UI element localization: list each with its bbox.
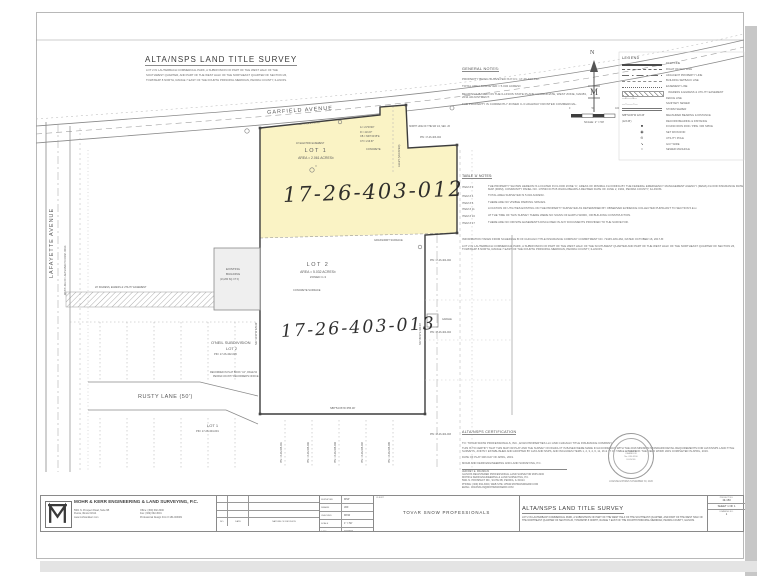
legend-label: STORM SEWER xyxy=(666,108,686,111)
project-cell: PROJECT NO. 19-153 SHEET 1 OF 1 DRAWING … xyxy=(707,496,745,531)
map-label: EXISTING xyxy=(226,268,240,271)
company-address: 5901 N. Prospect Road, Suite 6BPeoria, I… xyxy=(74,509,138,519)
map-label: WEST LINE OF LAUTERBACH COMM. PARK xyxy=(65,246,67,295)
staff-label: SCALE xyxy=(320,520,342,527)
legend-label: FOUND IRON ROD / PIPE / RR SPIKE xyxy=(666,125,713,128)
map-label: PIN: 17-26-404-002 xyxy=(430,260,451,262)
certification-to-line: TO: TOVAR SNOW PROFESSIONALS, INC., EVAN… xyxy=(462,441,744,445)
company-name: MOHR & KERR ENGINEERING & LAND SURVEYING… xyxy=(74,499,214,504)
lot2-label-block: LOT 2 AREA = 5.032 ACRES± ZONED C-3 xyxy=(274,262,362,279)
map-label: CH = 219.67' xyxy=(360,141,374,143)
legend-section: LEGEND DEED LINERIGHT OF WAY LINEADJACEN… xyxy=(622,56,742,154)
revision-header-no: NO. xyxy=(217,518,228,526)
map-label: PIN: 17-26-405-003 xyxy=(335,442,337,463)
table-a-item-text: TOTAL AREA SURVEYED IS 5.032 ACRES±. xyxy=(488,194,545,198)
table-a-item-number: ITEM # 11 xyxy=(462,207,488,211)
revision-row xyxy=(217,496,319,503)
general-notes-list: PROPERTY BEING SURVEYED IS P.I.N.: 17-26… xyxy=(462,78,588,107)
map-label: R = 413.97' xyxy=(360,132,372,134)
staff-value: 04/2019 xyxy=(342,530,353,531)
table-a-note: ITEM # 4TOTAL AREA SURVEYED IS 5.032 ACR… xyxy=(462,194,744,198)
table-a-list: ITEM # 3THE PROPERTY SHOWN HEREON IS LOC… xyxy=(462,185,744,225)
map-label: PIN: 17-26-405-001 xyxy=(281,442,283,463)
map-label: N88°54'26"E 197.70' xyxy=(298,122,320,126)
map-label: PIN: 17-26-404-003 xyxy=(430,434,451,436)
legend-label: ADJACENT PROPERTY LINE xyxy=(666,74,702,77)
table-a-item-text: AT THE TIME OF THIS SURVEY THERE WERE NO… xyxy=(488,214,631,218)
scale-tick: 50 xyxy=(591,108,594,110)
title-description-line: TOWNSHIP 8 NORTH, RANGE 7 EAST OF THE FO… xyxy=(146,78,341,83)
storm-symbol xyxy=(622,108,662,111)
legend-label: RIGHT OF WAY LINE xyxy=(666,68,692,71)
project-number-box: PROJECT NO. 19-153 xyxy=(708,496,745,504)
sheet-number-value: SHEET 1 OF 1 xyxy=(708,505,745,508)
general-note: THE PROPERTY IS CURRENTLY ZONED C-3 HIGH… xyxy=(462,103,588,107)
legend-item: ○SEWER MANHOLE xyxy=(622,148,742,154)
map-label: BUILDING xyxy=(226,273,240,276)
legend-label: BUILDING SETBACK LINE xyxy=(666,79,699,82)
legend-label: UTILITY POLE xyxy=(666,137,684,140)
map-label: 20' INGRESS, EGRESS & UTILITY EASEMENT xyxy=(95,287,146,289)
map-label: CB = N63°34'45"E xyxy=(360,136,380,138)
found-rod-symbol: ■ xyxy=(622,125,662,129)
company-contact-line: Professional Design Firm # 184-003081 xyxy=(140,516,214,519)
compass-emblem: M xyxy=(587,87,601,97)
row-symbol xyxy=(622,69,662,70)
staff-value: JDF xyxy=(342,506,349,509)
map-label: 10' ELECTRIC EASEMENT xyxy=(296,143,324,145)
map-label: LAFAYETTE AVENUE xyxy=(50,208,56,278)
measured-symbol: S88°54'26"W 123.45' xyxy=(622,114,662,117)
table-a-item-number: ITEM # 3 xyxy=(462,185,488,192)
certification-body: THIS IS TO CERTIFY THAT THIS MAP OR PLAT… xyxy=(462,447,744,454)
client-name: TOVAR SNOW PROFESSIONALS xyxy=(374,510,519,515)
map-label: CONCRETE xyxy=(366,149,381,152)
fence-symbol: —x——x— xyxy=(622,97,662,100)
company-logo xyxy=(45,501,72,528)
map-label: LOT 1 xyxy=(207,424,218,428)
sanitary-symbol: —○——○— xyxy=(622,103,662,106)
north-arrow-label: N xyxy=(590,50,594,56)
company-cell: MOHR & KERR ENGINEERING & LAND SURVEYING… xyxy=(41,496,216,531)
lot1-area: AREA = 2.061 ACRES± xyxy=(270,156,362,160)
survey-title-cell: ALTA/NSPS LAND TITLE SURVEY LOT 2 IN LAU… xyxy=(519,496,707,531)
scan-shadow-bottom xyxy=(40,561,757,572)
general-note: TOTAL AREA SURVEYED = 5.032 ACRES± xyxy=(462,85,588,89)
map-label: GARAGE xyxy=(442,319,452,321)
legend-heading: LEGEND xyxy=(622,56,742,60)
map-label: PIN: 17-26-402-005 xyxy=(214,354,237,357)
company-contact: Office: (309) 692-3000Fax: (309) 692-300… xyxy=(140,509,214,519)
staff-row: SURVEYEDMSP xyxy=(320,496,373,504)
table-a-notes-section: TABLE 'A' NOTES: ITEM # 3THE PROPERTY SH… xyxy=(462,164,744,225)
map-label: (13,260 SQ. FT.±) xyxy=(220,279,239,281)
legend-label: MEASURED BEARING & DISTANCE xyxy=(666,114,711,117)
legend-list: DEED LINERIGHT OF WAY LINEADJACENT PROPE… xyxy=(622,62,742,154)
scale-label: SCALE: 1" = 50' xyxy=(563,120,625,124)
staff-value: 1" = 50' xyxy=(342,522,352,525)
manhole-symbol: ○ xyxy=(622,148,662,152)
revision-headers: NO.DATENATURE OF REVISION xyxy=(217,518,319,526)
staff-row: SCALE1" = 50' xyxy=(320,520,373,528)
staff-label: DRAWN xyxy=(320,504,342,511)
guy-wire-symbol: ↘ xyxy=(622,143,662,147)
staff-label: CHECKED xyxy=(320,512,342,519)
survey-title-description: LOT 2 IN LAUTERBACH COMMERCIAL PARK, A S… xyxy=(522,516,705,522)
staff-label: SURVEYED xyxy=(320,496,342,503)
manhole-icon: ○ xyxy=(270,163,362,168)
record-symbol: (123.45') xyxy=(622,120,662,123)
surveyor-seal-inner: JEFFREY E.FRANKLINNo. 035-3200ILLINOIS xyxy=(613,438,649,474)
map-label: S88°54'26"W 655.30' xyxy=(330,408,355,411)
map-label: LOT 2 xyxy=(226,347,237,351)
staff-row: DATE04/2019 xyxy=(320,528,373,531)
client-label: CLIENT xyxy=(376,497,384,499)
revisions-cell: NO.DATENATURE OF REVISION xyxy=(216,496,319,531)
map-label: PIN: 17-26-405-004 xyxy=(362,442,364,463)
table-a-item-number: ITEM # 17 xyxy=(462,221,488,225)
table-a-note: ITEM # 6THERE ARE NO VISIBLE PARKING SPA… xyxy=(462,201,744,205)
staff-label: DATE xyxy=(320,528,342,531)
license-expiry-note: LICENSE EXPIRES NOVEMBER 30, 2020 xyxy=(590,481,672,483)
lot1-label-block: LOT 1 AREA = 2.061 ACRES± ○ xyxy=(270,148,362,168)
certification-firm-line: MOHR AND KERR ENGINEERING AND LAND SURVE… xyxy=(462,462,744,465)
staff-value: MSP xyxy=(342,498,349,501)
set-rod-symbol: ◉ xyxy=(622,131,662,135)
project-number-value: 19-153 xyxy=(708,499,745,502)
revision-row xyxy=(217,511,319,518)
legend-label: SET IRON ROD xyxy=(666,131,685,134)
easement-symbol xyxy=(622,87,662,88)
map-label: PEORIA COUNTY RECORDER'S OFFICE xyxy=(213,376,258,378)
surveyor-signature-block: JEFFREY E. FRANKLINILLINOIS REGISTERED P… xyxy=(462,470,744,489)
scale-bar-ticks: 050100 xyxy=(569,108,619,110)
deed-symbol xyxy=(622,64,662,66)
table-a-item-text: THERE ARE NO OFFSITE EASEMENTS DISCLOSED… xyxy=(488,221,629,225)
general-note: BEARINGS BASED ON THE ILLINOIS STATE PLA… xyxy=(462,93,588,100)
adjacent-symbol xyxy=(622,75,662,76)
map-label: PIN: 17-26-405-002 xyxy=(308,442,310,463)
utility-pole-symbol: ⊙ xyxy=(622,137,662,141)
scale-tick: 100 xyxy=(615,108,619,110)
mohr-kerr-logo-icon xyxy=(46,502,69,525)
general-notes-section: GENERAL NOTES: PROPERTY BEING SURVEYED I… xyxy=(462,57,588,107)
map-label: N01°10'34"W 378.00' xyxy=(256,322,258,345)
table-a-heading: TABLE 'A' NOTES: xyxy=(462,174,492,179)
schedule-b-paragraph: INFORMATION TAKEN FROM SCHEDULE B OF CHI… xyxy=(462,238,746,242)
table-a-item-number: ITEM # 4 xyxy=(462,194,488,198)
lot1-name: LOT 1 xyxy=(270,148,362,154)
map-label: PIN: 17-26-405-005 xyxy=(389,442,391,463)
company-address-line: www.mohrandkerr.com xyxy=(74,516,138,519)
survey-title: ALTA/NSPS LAND TITLE SURVEY xyxy=(522,506,624,514)
certification-date-line: DATE OF PLAT 30th DAY OF APRIL, 2019. xyxy=(462,456,744,459)
certification-section: ALTA/NSPS CERTIFICATION TO: TOVAR SNOW P… xyxy=(462,420,744,489)
lot2-area: AREA = 5.032 ACRES± xyxy=(274,270,362,274)
map-label: GARFIELD AVENUE xyxy=(267,106,333,116)
seal-text-line: ILLINOIS xyxy=(627,459,636,462)
scale-tick: 0 xyxy=(569,108,570,110)
scan-shadow-right xyxy=(745,26,757,576)
certification-heading: ALTA/NSPS CERTIFICATION xyxy=(462,430,516,435)
legend-label: EASEMENT LINE xyxy=(666,85,687,88)
revision-header-nature: NATURE OF REVISION xyxy=(249,521,319,523)
table-a-note: ITEM # 16AT THE TIME OF THIS SURVEY THER… xyxy=(462,214,744,218)
schedule-b-section: INFORMATION TAKEN FROM SCHEDULE B OF CHI… xyxy=(462,238,746,255)
revision-row xyxy=(217,503,319,510)
legend-label: SANITARY SEWER xyxy=(666,102,690,105)
table-a-note: ITEM # 3THE PROPERTY SHOWN HEREON IS LOC… xyxy=(462,185,744,192)
table-a-note: ITEM # 17THERE ARE NO OFFSITE EASEMENTS … xyxy=(462,221,744,225)
staff-cell: SURVEYEDMSPDRAWNJDFCHECKEDMKWSCALE1" = 5… xyxy=(319,496,373,531)
map-label: ALLEY (VACATED) xyxy=(399,145,402,167)
client-cell: CLIENT TOVAR SNOW PROFESSIONALS xyxy=(373,496,519,531)
legend-label: RECORD BEARING & DISTANCE xyxy=(666,120,707,123)
staff-value: MKW xyxy=(342,514,350,517)
surveyor-seal: JEFFREY E.FRANKLINNo. 035-3200ILLINOIS xyxy=(608,433,654,479)
map-label: CONCRETE SURFACE xyxy=(293,290,321,293)
map-label: O'NEIL SUBDIVISION xyxy=(211,341,251,345)
legend-label: DEED LINE xyxy=(666,62,680,65)
table-a-item-text: THERE ARE NO VISIBLE PARKING SPACES. xyxy=(488,201,546,205)
general-notes-heading: GENERAL NOTES: xyxy=(462,67,499,72)
sheet-title-description: LOT 2 IN LAUTERBACH COMMERCIAL PARK, A S… xyxy=(146,68,341,83)
legend-label: SEWER MANHOLE xyxy=(666,148,690,151)
table-a-note: ITEM # 11LOCATION OF UTILITIES EXISTING … xyxy=(462,207,744,211)
lot2-zoning: ZONED C-3 xyxy=(274,275,362,279)
map-label: PIN: 17-26-404-001 xyxy=(196,431,219,434)
map-label: NORTH LINE OF THE SW 1/4, SEC. 26 xyxy=(409,126,450,128)
table-a-item-number: ITEM # 6 xyxy=(462,201,488,205)
survey-sheet: GARFIELD AVENUELAFAYETTE AVENUEWEST LINE… xyxy=(0,0,761,588)
schedule-b-paragraph: LOT 2 IN LAUTERBACH COMMERCIAL PARK, A S… xyxy=(462,245,746,252)
staff-row: DRAWNJDF xyxy=(320,504,373,512)
signature-block-line: EMAIL: JFRANKLIN@MOHRANDKERR.COM xyxy=(462,486,744,489)
legend-label: FENCE LINE xyxy=(666,97,682,100)
legend-label: GUY WIRE xyxy=(666,143,680,146)
lot2-name: LOT 2 xyxy=(274,262,362,268)
staff-row: CHECKEDMKW xyxy=(320,512,373,520)
table-a-item-text: LOCATION OF UTILITIES EXISTING ON THE PR… xyxy=(488,207,697,211)
map-label: RUSTY LANE (50') xyxy=(138,395,193,401)
general-note: PROPERTY BEING SURVEYED IS P.I.N.: 17-26… xyxy=(462,78,588,82)
table-a-item-text: THE PROPERTY SHOWN HEREON IS LOCATED IN … xyxy=(488,185,744,192)
map-label: Δ = 21°03'00" xyxy=(360,127,374,129)
drawing-number-value: 1 xyxy=(708,513,745,516)
drawing-number-box: DRAWING NO. 1 xyxy=(708,510,745,517)
map-label: PIN: 17-26-403-004 xyxy=(420,137,441,139)
setback-symbol xyxy=(622,81,662,82)
legend-label: INGRESS & EGRESS & UTILITY EASEMENT xyxy=(668,91,723,94)
sheet-title: ALTA/NSPS LAND TITLE SURVEY xyxy=(145,55,297,66)
title-block: MOHR & KERR ENGINEERING & LAND SURVEYING… xyxy=(40,495,744,532)
revision-header-date: DATE xyxy=(228,518,249,526)
map-label: GRASS/DIRT SURFACE xyxy=(374,240,403,243)
table-a-item-number: ITEM # 16 xyxy=(462,214,488,218)
